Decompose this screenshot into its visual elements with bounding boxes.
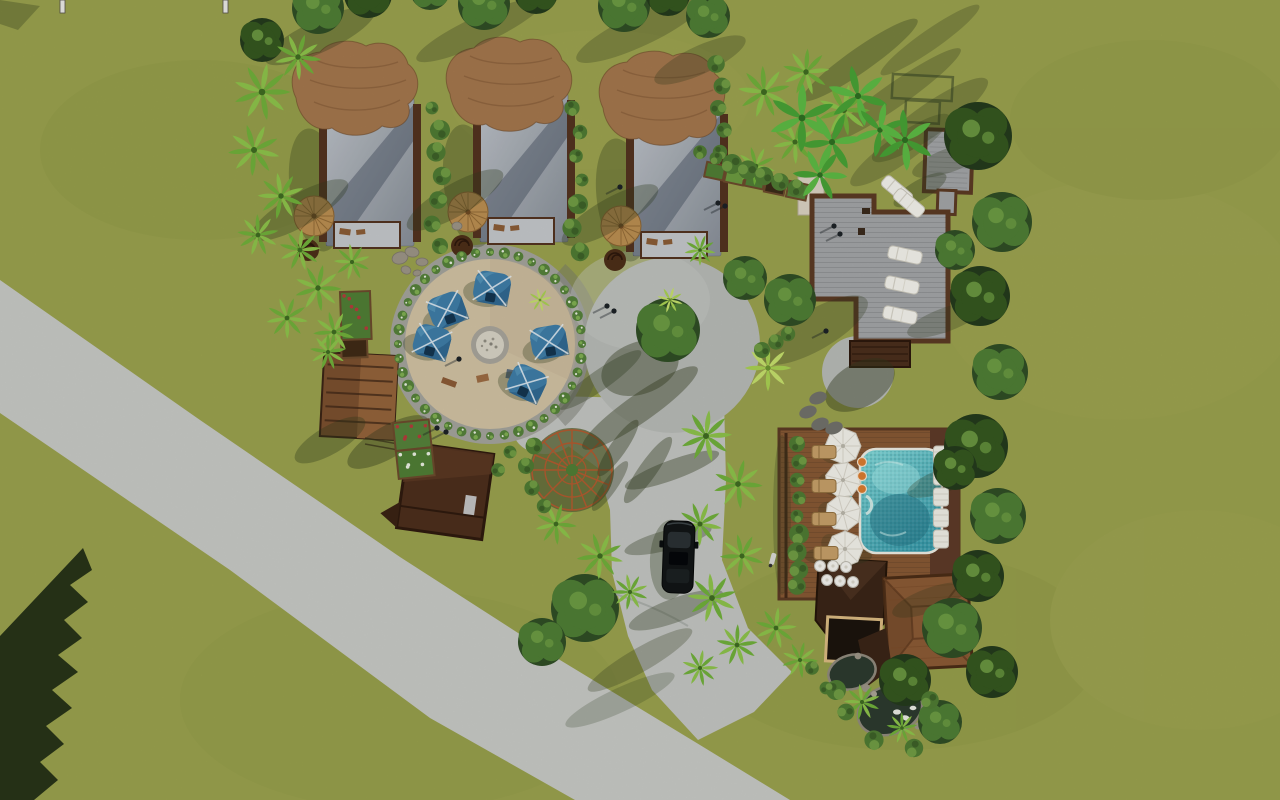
film-grain <box>0 0 1280 800</box>
aerial-render-stage <box>0 0 1280 800</box>
aerial-render-canvas <box>0 0 1280 800</box>
